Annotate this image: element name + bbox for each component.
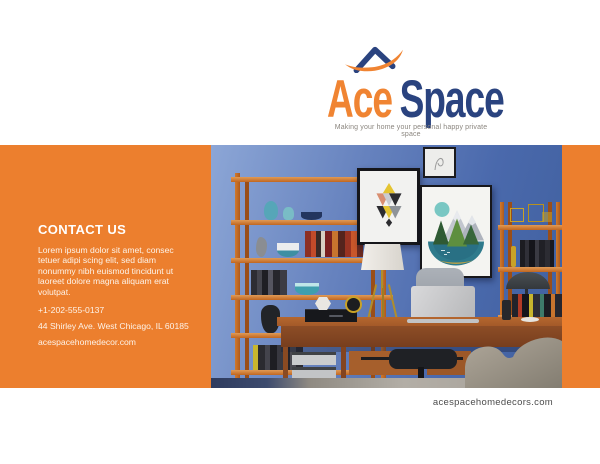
- office-photo: [211, 145, 562, 388]
- teal-vase: [264, 201, 278, 220]
- gold-rim-clock: [345, 296, 362, 313]
- shelf-rail: [235, 173, 240, 388]
- contact-phone: +1-202-555-0137: [38, 305, 187, 315]
- book-row: [251, 270, 287, 295]
- lamp-stem: [381, 270, 383, 288]
- mountain-art-frame: [420, 185, 492, 278]
- logo-tagline: Making your home your personal happy pri…: [330, 124, 492, 138]
- shelf-rail: [245, 182, 249, 388]
- striped-bowl: [277, 243, 299, 257]
- triangle-art: [370, 183, 408, 231]
- triangle-art-frame: [357, 168, 420, 245]
- armchair-shape: [465, 335, 562, 388]
- white-tray: [521, 317, 539, 322]
- laptop-base: [407, 319, 479, 323]
- footer-website: acespacehomedecors.com: [433, 397, 553, 408]
- teal-jug: [283, 207, 294, 220]
- wire-basket: [292, 352, 336, 365]
- right-accent-strip: [562, 145, 600, 388]
- gray-sculpture: [256, 237, 267, 257]
- contact-heading: CONTACT US: [38, 222, 187, 237]
- contact-body: Lorem ipsum dolor sit amet, consec tetue…: [38, 245, 187, 297]
- contact-website: acespacehomedecor.com: [38, 337, 187, 347]
- contact-panel: CONTACT US Lorem ipsum dolor sit amet, c…: [0, 145, 211, 388]
- book-row: [520, 240, 554, 267]
- beige-armchair: [465, 335, 562, 388]
- brass-block: [542, 212, 552, 222]
- roof-swoosh-logo-icon: [344, 44, 404, 73]
- dark-bottle: [502, 300, 511, 320]
- navy-bowl: [301, 212, 322, 220]
- contact-body-line: nonummy nibh euismod tincidunt ut: [38, 266, 187, 276]
- dome-desk-lamp: [506, 272, 550, 289]
- contact-address: 44 Shirley Ave. West Chicago, IL 60185: [38, 321, 187, 331]
- lamp-tripod-leg: [382, 285, 384, 320]
- contact-body-line: Lorem ipsum dolor sit amet, consec: [38, 245, 187, 255]
- contact-body-line: volutpat.: [38, 287, 187, 297]
- line-art-frame: [423, 147, 456, 178]
- office-chair-seat: [389, 349, 457, 369]
- logo-word-space: Space: [400, 73, 504, 126]
- shelf-board: [498, 225, 562, 230]
- mountain-art: [427, 194, 485, 270]
- pen: [329, 315, 343, 317]
- logo-wordmark: Ace Space: [327, 73, 504, 126]
- shelf-board: [231, 295, 393, 300]
- white-lamp-shade: [361, 244, 404, 270]
- line-art: [429, 152, 451, 174]
- laptop: [411, 286, 475, 320]
- contact-body-line: laoreet dolore magna aliquam erat: [38, 276, 187, 286]
- book-row: [305, 231, 363, 257]
- teal-bowl: [295, 283, 319, 295]
- brass-wire-cube: [510, 208, 524, 222]
- brass-candlestick: [511, 246, 516, 267]
- logo-word-ace: Ace: [327, 73, 392, 126]
- brochure-page: Ace Space Making your home your personal…: [0, 0, 600, 464]
- contact-body-line: tetuer adipi scing elit, sed diam: [38, 255, 187, 265]
